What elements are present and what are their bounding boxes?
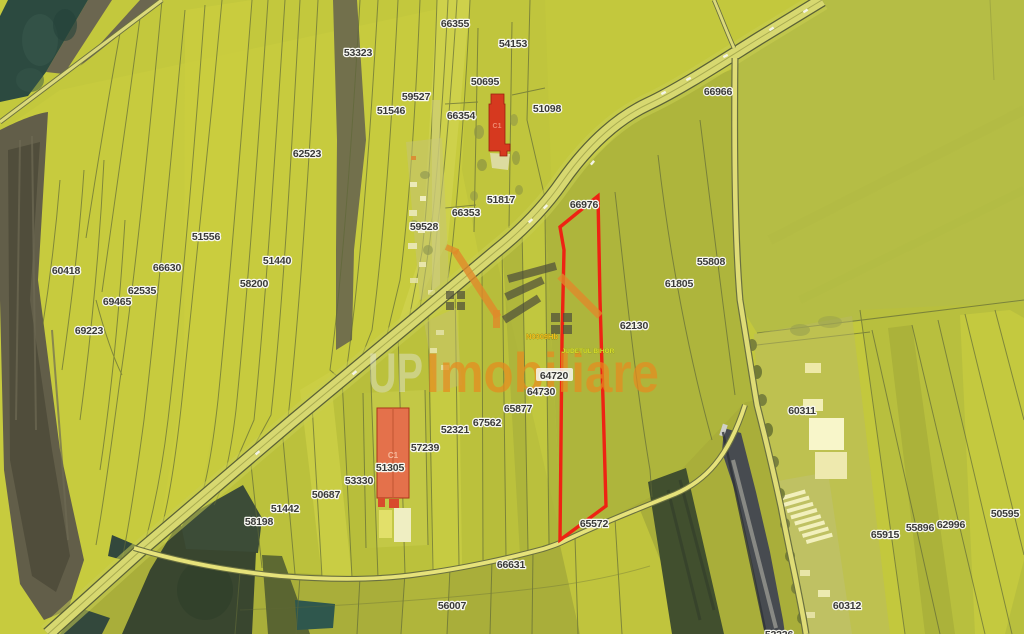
svg-text:59527: 59527	[402, 91, 431, 103]
svg-text:69223: 69223	[75, 325, 104, 337]
svg-text:59528: 59528	[410, 221, 439, 233]
svg-text:62523: 62523	[293, 148, 322, 160]
svg-text:52226: 52226	[765, 629, 794, 634]
svg-text:51442: 51442	[271, 503, 300, 515]
svg-text:60312: 60312	[833, 600, 862, 612]
svg-text:66976: 66976	[570, 199, 599, 211]
svg-text:55896: 55896	[906, 522, 935, 534]
svg-text:60418: 60418	[52, 265, 81, 277]
svg-text:58200: 58200	[240, 278, 269, 290]
svg-text:64730: 64730	[527, 386, 556, 398]
svg-text:50595: 50595	[991, 508, 1020, 520]
svg-text:C1: C1	[388, 451, 399, 460]
svg-text:50687: 50687	[312, 489, 341, 501]
svg-text:60311: 60311	[788, 405, 816, 417]
svg-text:56007: 56007	[438, 600, 467, 612]
svg-text:51546: 51546	[377, 105, 406, 117]
svg-text:62996: 62996	[937, 519, 966, 531]
svg-text:54153: 54153	[499, 38, 528, 50]
svg-text:UP: UP	[368, 341, 423, 404]
svg-text:65915: 65915	[871, 529, 900, 541]
svg-text:64720: 64720	[540, 370, 569, 382]
svg-text:66354: 66354	[447, 110, 476, 122]
svg-text:50695: 50695	[471, 76, 500, 88]
svg-text:65877: 65877	[504, 403, 533, 415]
svg-text:66631: 66631	[497, 559, 526, 571]
svg-text:67562: 67562	[473, 417, 502, 429]
svg-text:JUDEŢUL BIHOR: JUDEŢUL BIHOR	[562, 348, 615, 355]
svg-text:61805: 61805	[665, 278, 694, 290]
svg-text:52321: 52321	[441, 424, 470, 436]
svg-text:65572: 65572	[580, 518, 609, 530]
svg-text:66353: 66353	[452, 207, 481, 219]
svg-text:66966: 66966	[704, 86, 733, 98]
svg-text:C1: C1	[493, 123, 502, 130]
svg-text:62535: 62535	[128, 285, 157, 297]
svg-text:66630: 66630	[153, 262, 182, 274]
svg-text:53330: 53330	[345, 475, 374, 487]
svg-text:62130: 62130	[620, 320, 649, 332]
svg-text:69465: 69465	[103, 296, 132, 308]
svg-text:55808: 55808	[697, 256, 726, 268]
svg-text:57239: 57239	[411, 442, 440, 454]
svg-text:51556: 51556	[192, 231, 221, 243]
svg-text:53323: 53323	[344, 47, 373, 59]
svg-text:51440: 51440	[263, 255, 292, 267]
svg-text:51098: 51098	[533, 103, 562, 115]
svg-text:66355: 66355	[441, 18, 470, 30]
svg-text:51817: 51817	[487, 194, 516, 206]
svg-text:N0309Hb: N0309Hb	[526, 332, 559, 341]
svg-text:51305: 51305	[376, 462, 405, 474]
svg-text:58198: 58198	[245, 516, 274, 528]
